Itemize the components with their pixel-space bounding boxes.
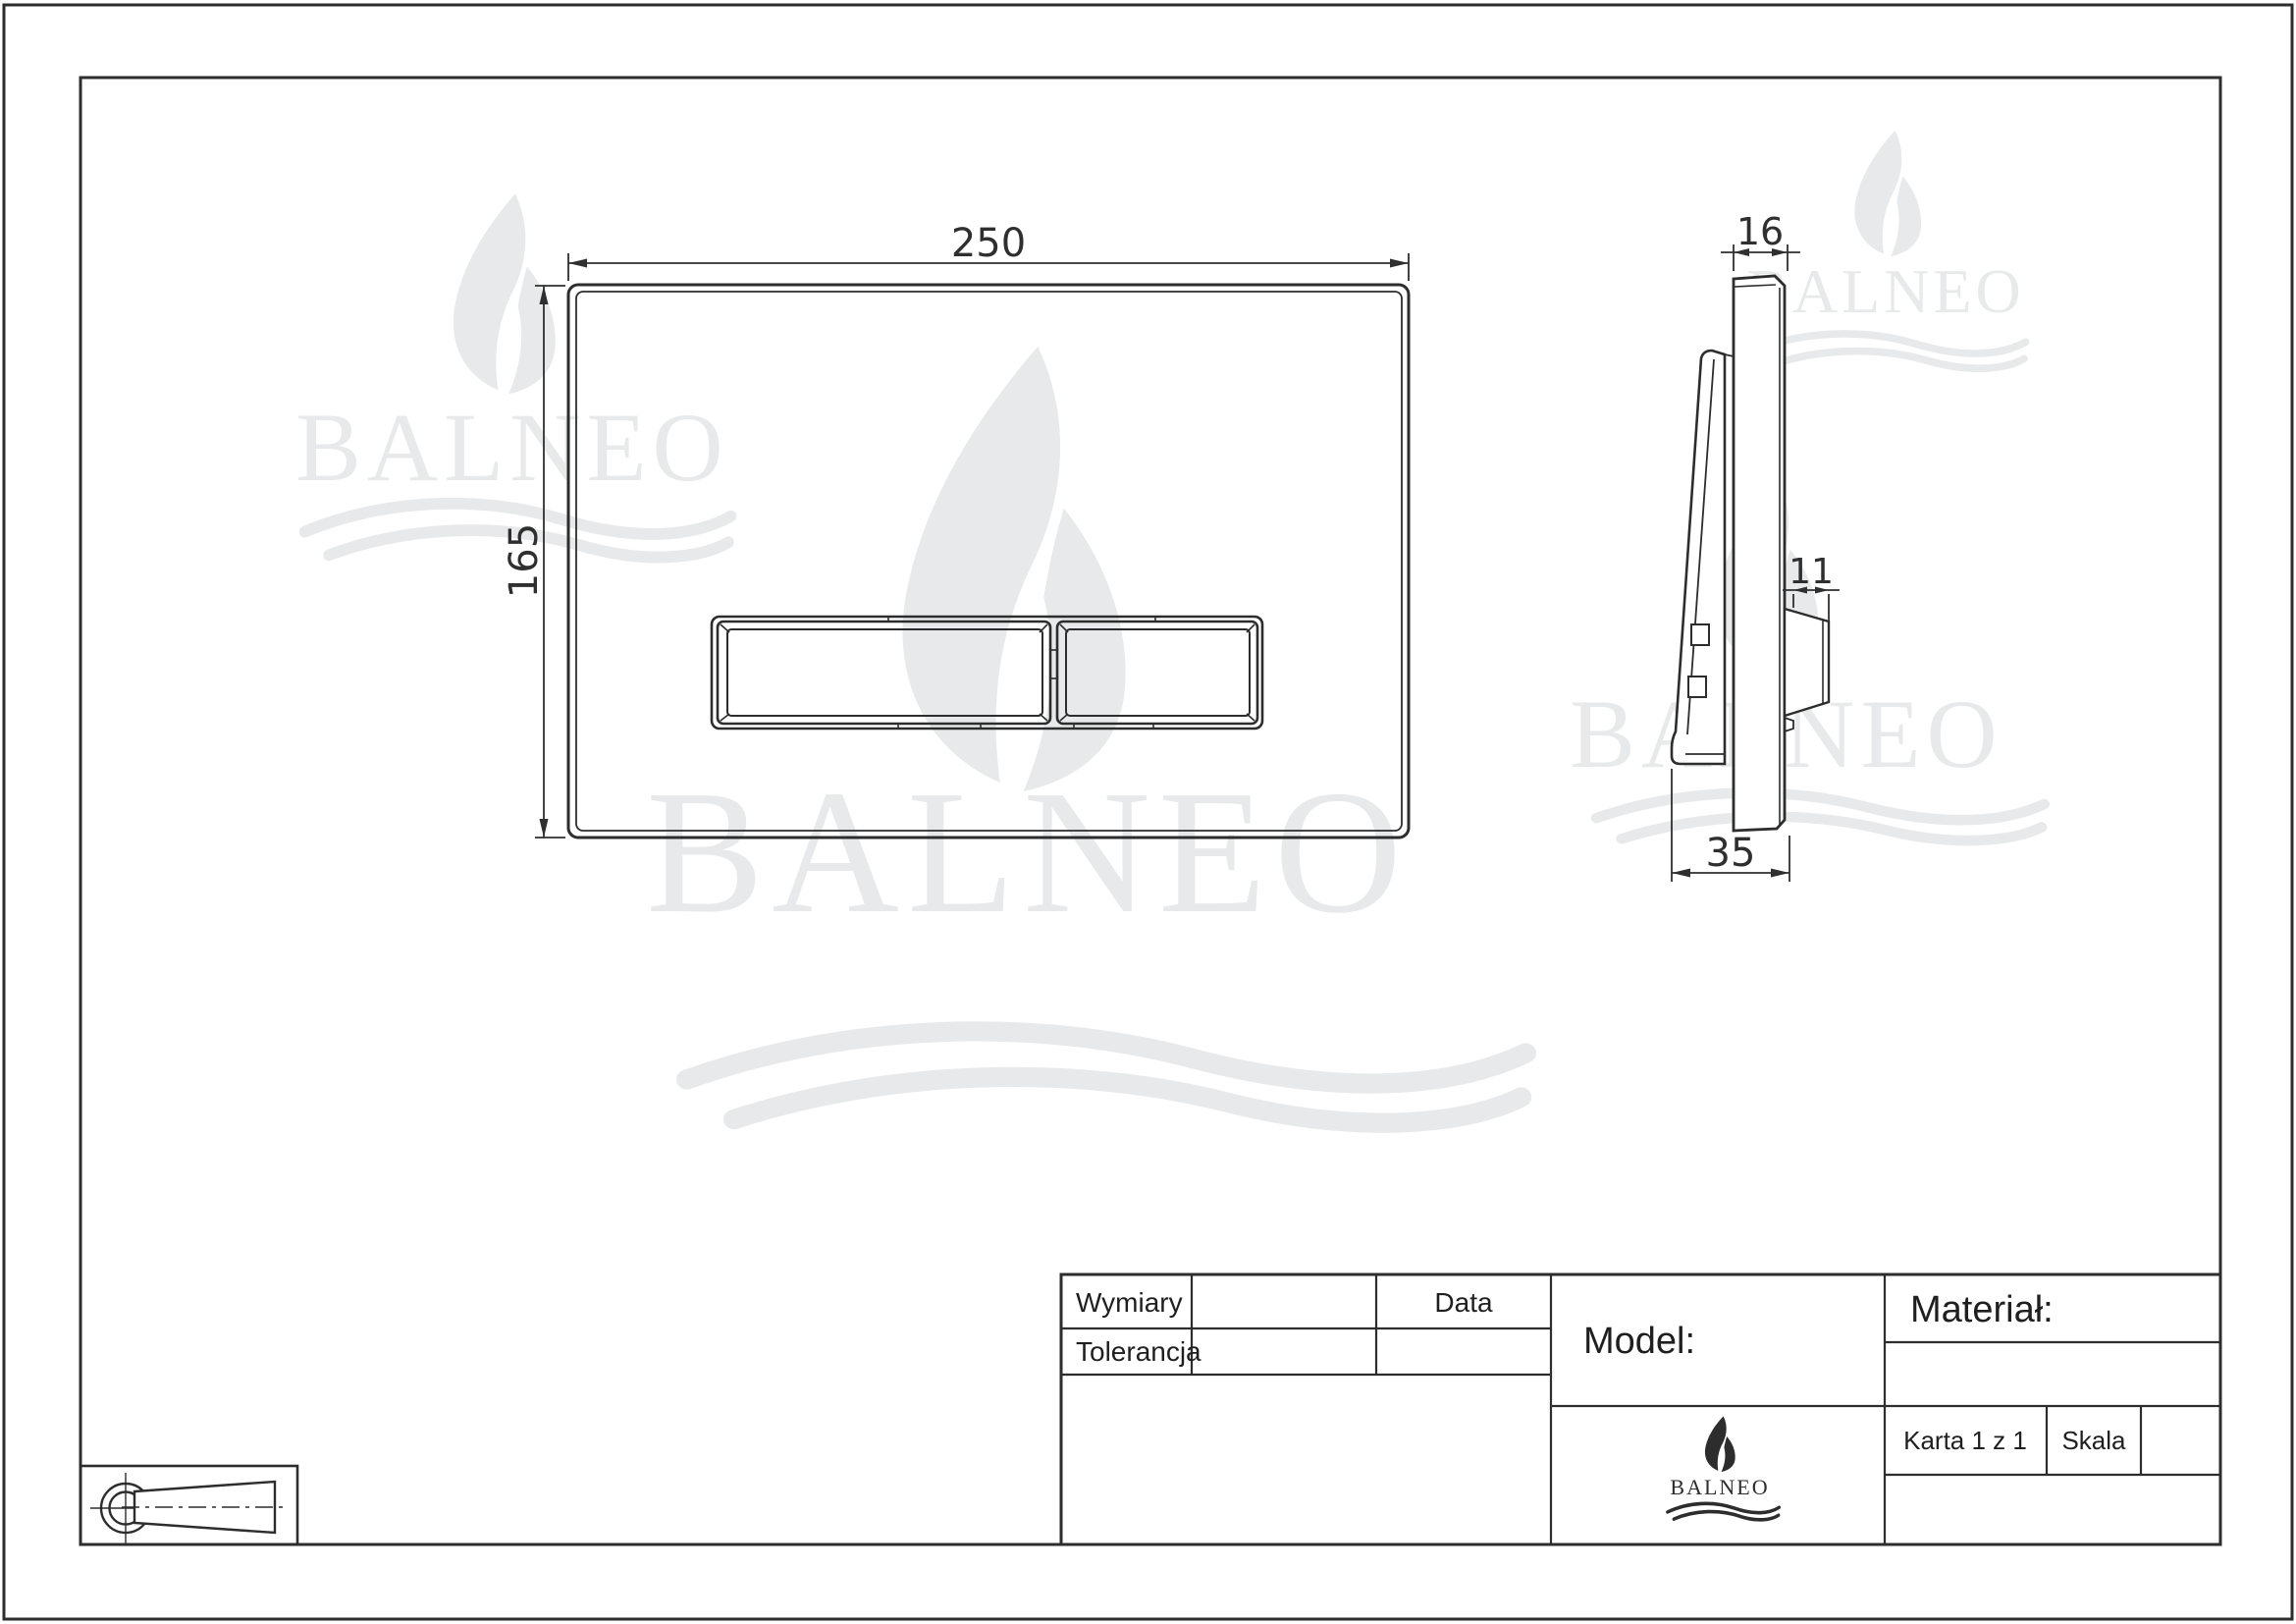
dim-label-button-depth: 11 — [1789, 552, 1834, 592]
balneo-wave-icon — [1750, 334, 2026, 368]
drawing-canvas: BALNEO BALNEO BALNEO BALNEO — [0, 0, 2296, 1624]
chamfer-line — [721, 714, 729, 721]
chamfer-line — [1247, 624, 1255, 632]
title-block-label-model: Model: — [1583, 1321, 1695, 1362]
watermark-text: BALNEO — [295, 393, 729, 502]
dim-label-side-thickness: 16 — [1736, 210, 1784, 253]
title-block-label-tolerancja: Tolerancja — [1076, 1336, 1201, 1367]
arrowhead-icon — [1771, 869, 1789, 878]
arrowhead-icon — [568, 259, 587, 268]
drawing-sheet: BALNEO BALNEO BALNEO BALNEO — [0, 0, 2296, 1624]
balneo-flame-icon — [454, 193, 556, 394]
arrowhead-icon — [540, 819, 549, 838]
mounting-clip — [1691, 624, 1709, 645]
arrowhead-icon — [1390, 259, 1409, 268]
chamfer-line — [1247, 714, 1255, 721]
watermark-left: BALNEO — [295, 193, 731, 557]
balneo-logo: BALNEO — [1668, 1416, 1780, 1519]
title-block-label-data: Data — [1434, 1287, 1493, 1318]
plate-profile — [1734, 276, 1785, 831]
title-block-label-skala: Skala — [2061, 1426, 2126, 1455]
projection-symbol — [80, 1466, 297, 1544]
chamfer-line — [1040, 624, 1047, 632]
balneo-wave-icon — [687, 1031, 1525, 1122]
watermark-text: BALNEO — [646, 754, 1410, 949]
dim-label-front-height: 165 — [502, 523, 547, 598]
title-block-label-wymiary: Wymiary — [1076, 1287, 1183, 1318]
balneo-logo-text: BALNEO — [1670, 1475, 1769, 1499]
title-block-label-material: Materiał: — [1910, 1289, 2054, 1330]
balneo-wave-icon — [1597, 793, 2045, 840]
mounting-bracket — [1672, 351, 1725, 764]
balneo-flame-icon — [1705, 1416, 1735, 1472]
watermark-center: BALNEO — [646, 347, 1525, 1123]
balneo-flame-icon — [1854, 131, 1921, 256]
chamfer-line — [721, 624, 729, 632]
title-block-label-karta: Karta 1 z 1 — [1903, 1426, 2027, 1455]
dim-label-base-depth: 35 — [1706, 831, 1756, 876]
balneo-wave-icon — [1668, 1503, 1780, 1520]
dim-label-front-width: 250 — [951, 221, 1026, 266]
arrowhead-icon — [1672, 869, 1690, 878]
watermark-right-top: BALNEO — [1746, 131, 2026, 368]
mounting-clip — [1688, 677, 1706, 697]
